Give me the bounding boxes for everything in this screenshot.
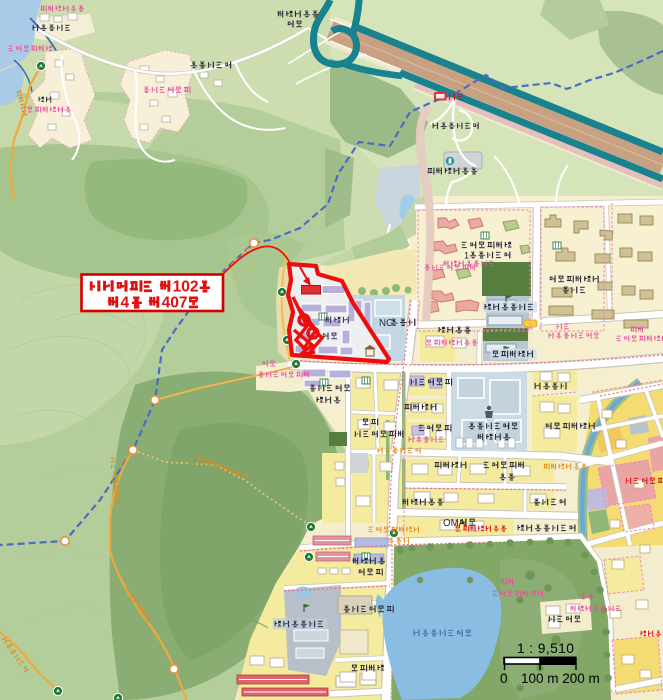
svg-text:100 m 200 m: 100 m 200 m [521,671,600,686]
svg-text:102: 102 [173,279,199,296]
svg-text:NC: NC [379,318,393,329]
svg-text:OMA: OMA [443,518,466,529]
svg-text:1 : 9,510: 1 : 9,510 [517,641,574,656]
svg-text:4: 4 [121,295,130,312]
svg-text:1: 1 [464,250,469,260]
svg-text:407: 407 [162,295,188,312]
svg-text:0: 0 [500,671,508,686]
